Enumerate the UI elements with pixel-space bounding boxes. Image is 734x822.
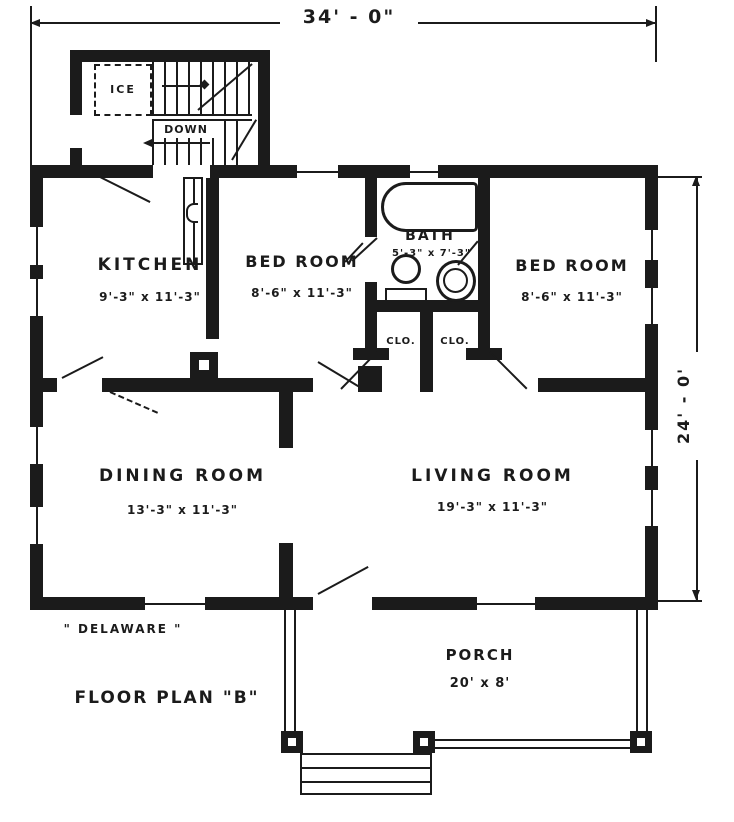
porch-label: PORCH (438, 646, 522, 664)
dimension-arrow-left-icon (30, 19, 40, 27)
wall-middle-segment-c (538, 378, 645, 392)
dimension-label-width: 34' - 0" (280, 6, 418, 28)
bathtub (381, 182, 478, 232)
stair-down-label: DOWN (154, 123, 218, 136)
wall-bath-right (478, 177, 490, 312)
dimension-line-right-upper-segment (696, 178, 698, 352)
house-name: " DELAWARE " (48, 622, 198, 636)
window-dining-left-1 (30, 425, 43, 466)
dimension-arrow-down-icon (692, 590, 700, 600)
porch-post-middle (413, 731, 435, 753)
living-room-label: LIVING ROOM (405, 466, 580, 486)
window-kitchen-left-2 (30, 277, 43, 318)
wall-middle-segment-a (30, 378, 57, 392)
porch-steps (300, 753, 432, 795)
dimension-label-height: 24' - 0' (674, 350, 702, 462)
wall-dining-living-stub-upper (279, 392, 293, 448)
kitchen-label: KITCHEN (70, 255, 230, 275)
bedroom-right-door-swing (489, 351, 527, 389)
porch-rail-bottom (435, 739, 632, 749)
dimension-extension-line-left (30, 6, 32, 165)
front-door-swing (318, 566, 369, 595)
dimension-arrow-right-icon (646, 19, 656, 27)
window-bedroom-left-top (295, 165, 340, 178)
ice-box: ICE (94, 64, 152, 116)
bedroom-right-label: BED ROOM (498, 256, 646, 275)
window-bedroom-right-2 (645, 286, 658, 326)
porch-post-right (630, 731, 652, 753)
dining-room-size: 13'-3" x 11'-3" (95, 503, 270, 517)
front-door-opening (313, 597, 372, 610)
closet-left-label: CLO. (380, 336, 422, 347)
porch-rail-right (636, 610, 648, 732)
window-living-bottom (475, 597, 537, 610)
dimension-line-top-left-segment (32, 22, 280, 24)
kitchen-dining-door-swing-dashed (110, 391, 158, 414)
stair-run-below (183, 177, 203, 265)
stair-landing-line-1 (152, 114, 252, 116)
sink-basin (385, 288, 427, 302)
vestibule-door-opening (70, 115, 82, 148)
wall-hall-corner-block (358, 366, 382, 392)
bedroom-right-size: 8'-6" x 11'-3" (498, 290, 646, 304)
wall-middle-segment-b (102, 378, 313, 392)
porch-size: 20' x 8' (438, 676, 522, 691)
exterior-wall-top (30, 165, 658, 178)
dimension-line-top-right-segment (418, 22, 656, 24)
porch-rail-left (284, 610, 296, 732)
stair-down-arrow-icon (143, 139, 152, 147)
window-dining-bottom (143, 597, 207, 610)
window-bedroom-right-1 (645, 228, 658, 262)
living-room-size: 19'-3" x 11'-3" (405, 500, 580, 514)
bedroom-left-label: BED ROOM (232, 252, 372, 271)
porch-post-left (281, 731, 303, 753)
bath-size: 5'-3" x 7'-3" (392, 248, 468, 259)
toilet-bowl (443, 268, 468, 293)
dimension-extension-line-bottom (658, 600, 702, 602)
window-bath-top (408, 165, 440, 178)
plan-title: FLOOR PLAN "B" (72, 688, 262, 708)
dimension-arrow-up-icon (692, 176, 700, 186)
door-handle-icon (186, 203, 198, 223)
chimney-flue (199, 360, 209, 370)
kitchen-size: 9'-3" x 11'-3" (70, 290, 230, 304)
dimension-line-right-lower-segment (696, 460, 698, 600)
vestibule-wall-top (70, 50, 270, 62)
floor-plan-drawing: 34' - 0" 24' - 0' IC (0, 0, 734, 822)
wall-bath-left-upper (365, 177, 377, 237)
back-door-swing (100, 176, 151, 203)
wall-dining-living-stub-lower (279, 543, 293, 597)
window-living-right-1 (645, 428, 658, 468)
chimney (190, 352, 218, 378)
closet-right-label: CLO. (434, 336, 476, 347)
window-kitchen-left-1 (30, 225, 43, 267)
window-dining-left-2 (30, 505, 43, 546)
bedroom-left-size: 8'-6" x 11'-3" (232, 286, 372, 300)
ice-box-label: ICE (96, 66, 150, 114)
dimension-extension-line-right (655, 6, 657, 62)
dining-room-label: DINING ROOM (95, 466, 270, 486)
stair-down-arrow-line (148, 142, 210, 144)
toilet (436, 260, 476, 302)
bath-label: BATH (392, 228, 468, 244)
stair-down-label-patch: DOWN (154, 121, 218, 138)
kitchen-dining-door-swing (62, 356, 104, 379)
window-living-right-2 (645, 488, 658, 528)
vestibule-wall-right (258, 50, 270, 177)
